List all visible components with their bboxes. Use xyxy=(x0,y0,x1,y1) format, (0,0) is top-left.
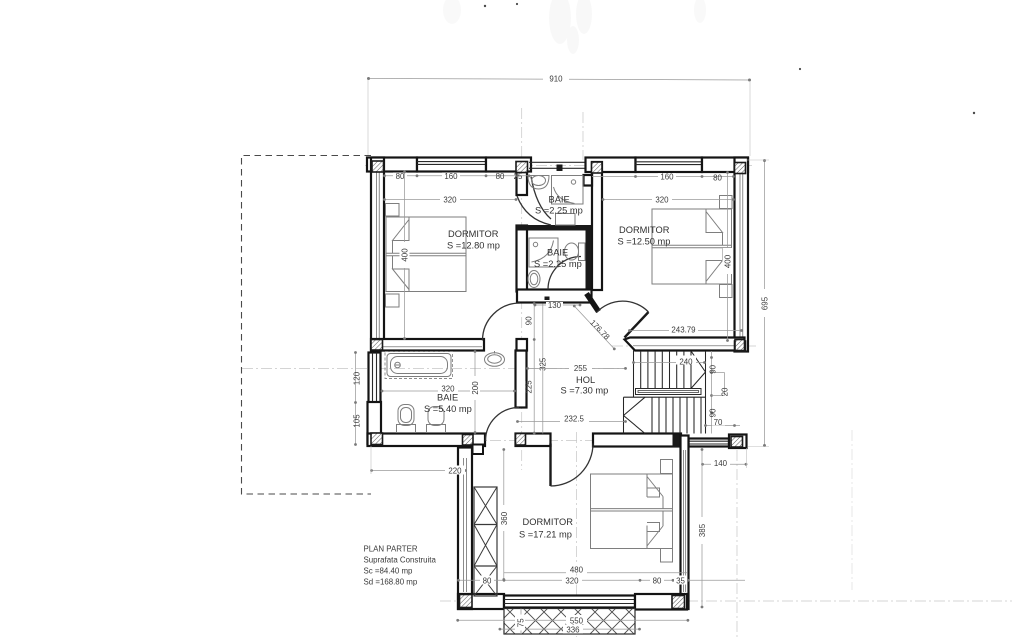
svg-text:75: 75 xyxy=(517,618,526,627)
svg-text:220: 220 xyxy=(448,467,462,476)
svg-text:120: 120 xyxy=(353,371,362,385)
svg-text:320: 320 xyxy=(655,196,669,205)
svg-text:20: 20 xyxy=(721,387,730,396)
svg-text:BAIE: BAIE xyxy=(437,393,458,403)
svg-text:336: 336 xyxy=(566,626,580,635)
svg-text:BAIE: BAIE xyxy=(547,248,568,258)
svg-text:160: 160 xyxy=(444,172,458,181)
svg-text:320: 320 xyxy=(443,196,457,205)
svg-text:80: 80 xyxy=(396,172,405,181)
svg-text:S =12.50 mp: S =12.50 mp xyxy=(618,237,671,247)
svg-text:S =17.21 mp: S =17.21 mp xyxy=(519,530,572,540)
svg-text:325: 325 xyxy=(539,357,548,371)
svg-text:385: 385 xyxy=(698,523,707,537)
svg-text:80: 80 xyxy=(713,174,722,183)
svg-text:550: 550 xyxy=(570,617,584,626)
svg-text:160: 160 xyxy=(660,173,674,182)
svg-text:S =5.40 mp: S =5.40 mp xyxy=(424,404,472,414)
svg-text:DORMITOR: DORMITOR xyxy=(523,517,574,527)
svg-text:910: 910 xyxy=(549,75,563,84)
svg-text:140: 140 xyxy=(714,459,728,468)
svg-text:Sd =168.80 mp: Sd =168.80 mp xyxy=(364,578,418,587)
svg-text:25: 25 xyxy=(514,172,523,181)
svg-text:360: 360 xyxy=(500,511,509,525)
svg-text:PLAN PARTER: PLAN PARTER xyxy=(364,545,418,554)
svg-text:80: 80 xyxy=(496,172,505,181)
svg-text:S =12.80 mp: S =12.80 mp xyxy=(447,241,500,251)
svg-text:695: 695 xyxy=(761,296,770,310)
svg-text:225: 225 xyxy=(525,380,534,394)
svg-text:80: 80 xyxy=(653,577,662,586)
svg-text:80: 80 xyxy=(483,577,492,586)
svg-text:243.79: 243.79 xyxy=(671,326,696,335)
svg-text:255: 255 xyxy=(574,364,588,373)
svg-text:90: 90 xyxy=(525,316,534,325)
svg-text:S =2.25 mp: S =2.25 mp xyxy=(534,259,582,269)
svg-text:35: 35 xyxy=(676,577,685,586)
svg-text:DORMITOR: DORMITOR xyxy=(619,225,670,235)
svg-text:200: 200 xyxy=(471,381,480,395)
svg-text:130: 130 xyxy=(548,301,562,310)
svg-text:HOL: HOL xyxy=(576,375,595,385)
svg-text:BAIE: BAIE xyxy=(549,195,570,205)
svg-text:232.5: 232.5 xyxy=(564,415,584,424)
svg-text:Suprafata Construita: Suprafata Construita xyxy=(364,556,437,565)
svg-text:Sc =84.40 mp: Sc =84.40 mp xyxy=(364,567,414,576)
svg-text:90: 90 xyxy=(709,364,718,373)
svg-text:70: 70 xyxy=(714,418,723,427)
svg-text:400: 400 xyxy=(724,254,733,268)
svg-text:105: 105 xyxy=(353,414,362,428)
svg-text:S =7.30 mp: S =7.30 mp xyxy=(561,386,609,396)
svg-text:480: 480 xyxy=(570,566,584,575)
svg-text:240: 240 xyxy=(679,358,693,367)
svg-text:S =2.25 mp: S =2.25 mp xyxy=(535,206,583,216)
svg-text:400: 400 xyxy=(401,248,410,262)
svg-text:320: 320 xyxy=(565,577,579,586)
svg-text:DORMITOR: DORMITOR xyxy=(448,229,499,239)
svg-text:90: 90 xyxy=(709,408,718,417)
